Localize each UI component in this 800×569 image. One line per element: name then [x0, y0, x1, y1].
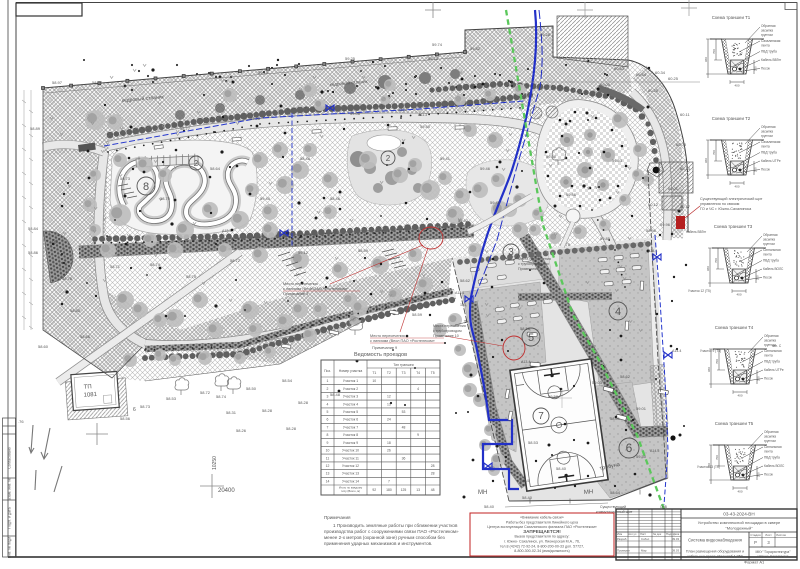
svg-text:60.64: 60.64: [636, 72, 647, 77]
svg-text:Кабель ВОЛС: Кабель ВОЛС: [763, 267, 784, 271]
svg-text:48: 48: [402, 425, 406, 429]
svg-text:Участок 10: Участок 10: [342, 449, 359, 453]
svg-text:1 Производить земляные рабо: 1 Производить земляные работы при сближе…: [333, 523, 458, 528]
svg-text:59.28: 59.28: [540, 32, 551, 37]
svg-text:№ док: № док: [653, 532, 662, 536]
svg-text:А11.2: А11.2: [398, 108, 407, 112]
svg-text:59.50: 59.50: [420, 124, 431, 129]
svg-text:58.53: 58.53: [166, 396, 177, 401]
svg-text:58.59: 58.59: [412, 312, 423, 317]
svg-text:А13.4: А13.4: [521, 360, 530, 364]
svg-text:250: 250: [756, 275, 760, 280]
svg-text:Разраб.: Разраб.: [617, 537, 627, 541]
svg-text:Инв. № подл.: Инв. № подл.: [8, 536, 12, 558]
svg-text:Место пересечения: Место пересечения: [370, 334, 405, 338]
svg-text:г.Южно-Сахалинска: г.Южно-Сахалинска: [757, 555, 788, 559]
svg-text:250: 250: [757, 376, 761, 381]
svg-text:1: 1: [327, 379, 329, 383]
svg-text:59.60: 59.60: [546, 154, 557, 159]
svg-text:лента: лента: [764, 354, 773, 358]
svg-text:Песок: Песок: [761, 168, 770, 172]
svg-text:Песок: Песок: [763, 276, 772, 280]
svg-text:лента: лента: [761, 44, 770, 48]
svg-text:1У3: 1У3: [460, 303, 466, 307]
svg-text:Участок 9 (Т3): Участок 9 (Т3): [700, 349, 721, 353]
svg-text:Примечание 10: Примечание 10: [518, 267, 544, 271]
svg-text:58.56: 58.56: [120, 416, 131, 421]
svg-text:58.48: 58.48: [300, 156, 311, 161]
svg-text:58.77: 58.77: [180, 126, 191, 131]
svg-text:.76: .76: [18, 419, 24, 424]
svg-text:58.40: 58.40: [484, 504, 495, 509]
svg-text:59.85: 59.85: [600, 236, 611, 241]
svg-text:59.06: 59.06: [250, 116, 261, 121]
svg-text:60.17: 60.17: [680, 204, 691, 209]
svg-text:13: 13: [387, 402, 391, 406]
svg-text:58.53: 58.53: [528, 440, 539, 445]
svg-text:А14.1: А14.1: [648, 249, 657, 253]
svg-text:58.28: 58.28: [298, 400, 309, 405]
svg-text:Участок 5: Участок 5: [343, 410, 358, 414]
svg-text:засыпка: засыпка: [764, 435, 776, 439]
svg-text:58.28: 58.28: [286, 426, 297, 431]
svg-text:59.50: 59.50: [398, 236, 409, 241]
svg-text:4: 4: [417, 387, 419, 391]
svg-text:ПВД труба: ПВД труба: [761, 50, 777, 54]
svg-text:24: 24: [387, 418, 391, 422]
svg-text:58.64: 58.64: [210, 166, 221, 171]
svg-text:8-800-300-02-34 (имя/должность: 8-800-300-02-34 (имя/должность): [514, 549, 569, 553]
svg-text:60.11: 60.11: [680, 112, 690, 117]
svg-text:14: 14: [326, 479, 330, 483]
svg-text:Участок 12: Участок 12: [342, 464, 359, 468]
svg-text:59.41: 59.41: [440, 156, 451, 161]
svg-text:А14.5: А14.5: [650, 449, 659, 453]
svg-text:Кабель UTPе: Кабель UTPе: [761, 159, 781, 163]
svg-text:11: 11: [326, 456, 330, 460]
svg-text:59.73: 59.73: [428, 56, 439, 61]
svg-text:Листов: Листов: [776, 533, 786, 537]
svg-text:Обратная: Обратная: [761, 125, 776, 129]
svg-text:60.14: 60.14: [680, 166, 691, 171]
svg-text:Примечание 9: Примечание 9: [372, 346, 397, 350]
svg-text:59.25: 59.25: [345, 56, 356, 61]
svg-text:Ведомость проездов: Ведомость проездов: [354, 352, 407, 358]
svg-text:10: 10: [326, 449, 330, 453]
svg-text:6: 6: [133, 407, 136, 413]
svg-text:700: 700: [712, 150, 716, 155]
svg-text:Участок 9: Участок 9: [343, 441, 358, 445]
svg-text:58.28: 58.28: [262, 408, 273, 413]
svg-text:59.40: 59.40: [260, 196, 271, 201]
svg-text:03-43-2024-ВН: 03-43-2024-ВН: [723, 512, 754, 517]
svg-text:грунтом: грунтом: [761, 33, 773, 37]
svg-text:Согласовано: Согласовано: [8, 447, 12, 469]
svg-text:400: 400: [737, 394, 742, 398]
svg-text:59.12: 59.12: [298, 250, 309, 255]
svg-text:Песок: Песок: [764, 473, 773, 477]
svg-text:Участок 8: Участок 8: [343, 433, 358, 437]
svg-text:58.72: 58.72: [230, 258, 241, 263]
svg-text:Участок 4: Участок 4: [343, 402, 358, 406]
svg-text:Существующий электрический щит: Существующий электрический щит: [700, 197, 763, 201]
svg-text:250: 250: [754, 66, 758, 71]
svg-text:менее 2-х метров (охранной зон: менее 2-х метров (охранной зоне) ручным …: [324, 534, 445, 540]
svg-text:Система видеонаблюдения: Система видеонаблюдения: [688, 538, 742, 543]
svg-text:09.03: 09.03: [672, 549, 679, 553]
svg-text:7: 7: [327, 425, 329, 429]
svg-text:58.76: 58.76: [62, 276, 73, 281]
svg-text:7: 7: [388, 479, 390, 483]
svg-text:засыпка: засыпка: [764, 339, 776, 343]
svg-text:8: 8: [327, 433, 329, 437]
svg-text:МКУ "Горархитектура": МКУ "Горархитектура": [756, 550, 792, 554]
svg-text:60.25: 60.25: [668, 76, 679, 81]
svg-text:Участок 1: Участок 1: [343, 379, 358, 383]
svg-text:Поз.: Поз.: [324, 369, 331, 373]
svg-text:Место пересечения: Место пересечения: [283, 282, 318, 286]
svg-text:960: 960: [706, 266, 710, 271]
svg-text:с трубопроводом: с трубопроводом: [433, 329, 462, 333]
svg-text:6: 6: [327, 418, 329, 422]
svg-text:А11.1: А11.1: [374, 104, 383, 108]
svg-text:58.71: 58.71: [110, 264, 121, 269]
svg-text:59.74: 59.74: [432, 42, 443, 47]
svg-text:58.73: 58.73: [120, 176, 131, 181]
svg-text:9: 9: [327, 441, 329, 445]
svg-text:59.82: 59.82: [470, 46, 481, 51]
svg-text:4: 4: [615, 306, 621, 318]
svg-text:лента: лента: [761, 145, 770, 149]
svg-text:28: 28: [431, 472, 435, 476]
svg-text:Кабель ВВГнг: Кабель ВВГнг: [686, 230, 707, 234]
svg-text:250: 250: [757, 472, 761, 477]
svg-text:грунтом: грунтом: [761, 134, 773, 138]
svg-text:400: 400: [737, 490, 742, 494]
svg-text:12: 12: [326, 464, 330, 468]
svg-text:10: 10: [372, 379, 376, 383]
svg-text:10250: 10250: [212, 456, 218, 470]
svg-text:60.01: 60.01: [668, 186, 679, 191]
svg-text:Т1: Т1: [372, 371, 376, 375]
svg-text:Подп. и дата: Подп. и дата: [8, 507, 12, 528]
svg-text:грунтом: грунтом: [764, 439, 776, 443]
svg-text:План размещения оборудования и: План размещения оборудования и: [686, 550, 744, 554]
svg-text:7: 7: [538, 411, 544, 422]
svg-text:Участок 11: Участок 11: [342, 456, 359, 460]
svg-text:92: 92: [372, 488, 376, 492]
svg-text:58.01: 58.01: [610, 416, 621, 421]
svg-text:Мар: Мар: [641, 549, 647, 553]
svg-text:ПВД труба: ПВД труба: [763, 259, 779, 263]
svg-text:Примечание 10: Примечание 10: [433, 334, 459, 338]
svg-text:58.72: 58.72: [200, 390, 211, 395]
svg-text:58.97: 58.97: [92, 80, 103, 85]
svg-text:53: 53: [402, 410, 406, 414]
svg-text:Тип траншеи: Тип траншеи: [393, 363, 413, 367]
svg-text:Взам. инв. №: Взам. инв. №: [8, 478, 12, 500]
svg-text:58.75: 58.75: [160, 196, 171, 201]
svg-text:Проверил: Проверил: [617, 549, 630, 553]
svg-text:59.50: 59.50: [636, 454, 647, 459]
svg-text:А13.1: А13.1: [455, 291, 464, 295]
svg-text:58.60: 58.60: [38, 344, 49, 349]
svg-text:засыпка: засыпка: [761, 29, 773, 33]
svg-text:лента: лента: [763, 253, 772, 257]
svg-text:59.63: 59.63: [612, 158, 623, 163]
svg-text:09.03: 09.03: [672, 537, 679, 541]
svg-text:13: 13: [416, 488, 420, 492]
svg-text:ПВД труба: ПВД труба: [761, 151, 777, 155]
svg-text:36: 36: [402, 456, 406, 460]
svg-text:59.03: 59.03: [592, 380, 603, 385]
svg-text:Участок 13 (Т5): Участок 13 (Т5): [697, 465, 720, 469]
svg-text:400: 400: [736, 293, 741, 297]
svg-text:Устройство комплексной площадк: Устройство комплексной площадки в сквере: [698, 520, 781, 525]
svg-text:20400: 20400: [218, 488, 235, 494]
svg-text:Примечание 3: Примечание 3: [283, 292, 308, 296]
svg-text:48: 48: [431, 488, 435, 492]
svg-text:58.31: 58.31: [226, 410, 237, 415]
svg-text:Изм: Изм: [617, 532, 622, 536]
svg-text:Кабель UTPе: Кабель UTPе: [764, 368, 784, 372]
svg-text:с линиями (Веол ПАО «Ростелеко: с линиями (Веол ПАО «Ростелеком»: [283, 287, 348, 291]
svg-text:58.26: 58.26: [236, 428, 247, 433]
svg-text:Обратная: Обратная: [763, 233, 778, 237]
svg-text:Кабель ВВГнг: Кабель ВВГнг: [761, 58, 782, 62]
svg-text:58.48: 58.48: [330, 392, 341, 397]
svg-text:960: 960: [704, 158, 708, 163]
svg-text:4: 4: [327, 402, 329, 406]
svg-text:700: 700: [714, 258, 718, 263]
svg-text:Сигнальная: Сигнальная: [764, 349, 782, 353]
svg-text:Лист: Лист: [765, 533, 772, 537]
svg-text:58.40: 58.40: [522, 495, 533, 500]
svg-text:125: 125: [401, 488, 407, 492]
svg-text:Сахалинская: Сахалинская: [761, 39, 781, 43]
svg-text:Схема траншеи Т2: Схема траншеи Т2: [712, 116, 751, 121]
svg-text:управления по связям: управления по связям: [700, 202, 740, 206]
svg-text:400: 400: [734, 84, 739, 88]
svg-text:Номер участка: Номер участка: [339, 369, 363, 373]
svg-text:ПВД труба: ПВД труба: [764, 456, 780, 460]
svg-text:Кол.уч: Кол.уч: [628, 532, 637, 536]
svg-text:"Молодежный": "Молодежный": [725, 526, 753, 531]
svg-text:Участок 14: Участок 14: [342, 479, 359, 483]
svg-text:применения ударных механизмов: применения ударных механизмов и инструме…: [324, 541, 432, 546]
svg-text:58.64: 58.64: [610, 490, 621, 495]
svg-text:А11.3: А11.3: [418, 113, 427, 117]
svg-text:ТП: ТП: [84, 384, 92, 391]
svg-text:58.97: 58.97: [52, 80, 63, 85]
svg-text:Т5: Т5: [431, 371, 435, 375]
svg-text:59.56: 59.56: [566, 192, 577, 197]
svg-text:60.34: 60.34: [655, 70, 666, 75]
svg-text:60.25: 60.25: [648, 88, 659, 93]
svg-text:Места пересечения: Места пересечения: [518, 257, 551, 261]
svg-text:ЗАПРЕЩАЕТСЯ!: ЗАПРЕЩАЕТСЯ!: [523, 529, 561, 534]
svg-text:Сахалинская: Сахалинская: [761, 140, 781, 144]
svg-text:2: 2: [194, 159, 199, 168]
svg-text:МН: МН: [478, 490, 487, 496]
svg-text:58.75: 58.75: [186, 274, 197, 279]
svg-text:грунтом: грунтом: [763, 242, 775, 246]
svg-text:Т2: Т2: [387, 371, 391, 375]
svg-text:Участок 12 (Т5): Участок 12 (Т5): [688, 289, 711, 293]
svg-text:9: 9: [417, 433, 419, 437]
svg-text:58.50: 58.50: [246, 386, 257, 391]
svg-text:засыпка: засыпка: [763, 238, 775, 242]
svg-text:59.62: 59.62: [458, 218, 469, 223]
svg-text:Песок: Песок: [761, 67, 770, 71]
svg-text:58.66: 58.66: [80, 334, 91, 339]
svg-text:8: 8: [143, 181, 149, 193]
svg-text:6: 6: [626, 441, 633, 455]
svg-text:59.10: 59.10: [258, 70, 269, 75]
svg-text:58.73: 58.73: [140, 404, 151, 409]
svg-text:засыпка: засыпка: [761, 130, 773, 134]
svg-text:58.62: 58.62: [460, 278, 471, 283]
svg-text:2: 2: [386, 154, 391, 163]
svg-text:59.96: 59.96: [660, 222, 671, 227]
svg-text:12: 12: [387, 395, 391, 399]
svg-text:59.48: 59.48: [490, 200, 501, 205]
svg-text:700: 700: [715, 359, 719, 364]
svg-text:26: 26: [387, 449, 391, 453]
svg-text:ПВД труба: ПВД труба: [764, 360, 780, 364]
svg-text:Места пересечения: Места пересечения: [433, 324, 466, 328]
svg-text:Работы без представителя Линей: Работы без представителя Линейного цеха: [506, 520, 578, 524]
svg-text:18: 18: [387, 441, 391, 445]
svg-text:700: 700: [712, 49, 716, 54]
svg-text:5: 5: [327, 410, 329, 414]
svg-text:кабельных трасс. Масштаб 1:250: кабельных трасс. Масштаб 1:250: [687, 555, 742, 559]
svg-text:59.01: 59.01: [636, 406, 647, 411]
svg-text:А12.2: А12.2: [222, 229, 231, 233]
svg-text:3: 3: [508, 247, 514, 258]
svg-text:«Внимание кабель связи»: «Внимание кабель связи»: [520, 516, 564, 520]
svg-text:Лист: Лист: [640, 532, 647, 536]
svg-text:5: 5: [528, 332, 534, 344]
svg-text:960: 960: [707, 367, 711, 372]
svg-text:А13.5: А13.5: [520, 479, 529, 483]
svg-text:700: 700: [715, 455, 719, 460]
svg-text:Участок 3: Участок 3: [343, 395, 358, 399]
svg-text:58.74: 58.74: [216, 394, 227, 399]
svg-text:58.59: 58.59: [358, 248, 369, 253]
svg-text:58.46: 58.46: [330, 196, 341, 201]
svg-text:Участок 2: Участок 2: [343, 387, 358, 391]
svg-text:Вызов представителя по адресу:: Вызов представителя по адресу:: [515, 535, 570, 539]
svg-text:960: 960: [704, 57, 708, 62]
svg-text:58.40: 58.40: [556, 466, 567, 471]
svg-text:ОНВ: ОНВ: [660, 505, 667, 509]
svg-text:3: 3: [327, 395, 329, 399]
svg-text:Формат А1: Формат А1: [744, 560, 765, 565]
svg-text:58.62: 58.62: [620, 374, 631, 379]
svg-text:58.80: 58.80: [70, 308, 81, 313]
svg-text:250: 250: [754, 167, 758, 172]
svg-text:Схема траншеи Т5: Схема траншеи Т5: [715, 421, 754, 426]
svg-text:60.63: 60.63: [614, 66, 625, 71]
svg-text:Участок 7: Участок 7: [343, 425, 358, 429]
svg-text:60.00: 60.00: [600, 82, 611, 87]
svg-text:58.89: 58.89: [30, 126, 41, 131]
svg-text:2: 2: [327, 387, 329, 391]
svg-text:Сигнальная: Сигнальная: [764, 445, 782, 449]
svg-text:59.08: 59.08: [350, 111, 361, 116]
svg-text:Обратная: Обратная: [764, 430, 779, 434]
svg-text:г. Южно- Сахалинск, ул. Пионер: г. Южно- Сахалинск, ул. Пионерская М.А.,…: [504, 540, 580, 544]
svg-text:Р: Р: [754, 540, 757, 545]
svg-text:28: 28: [431, 464, 435, 468]
svg-text:Т4: Т4: [416, 371, 420, 375]
svg-text:60.12: 60.12: [648, 202, 659, 207]
svg-text:Примечания: Примечания: [324, 515, 351, 520]
svg-text:59.46: 59.46: [480, 166, 491, 171]
svg-text:Участок 13: Участок 13: [342, 472, 359, 476]
svg-text:13: 13: [326, 472, 330, 476]
svg-text:60.03: 60.03: [676, 142, 687, 147]
svg-text:Собол: Собол: [641, 537, 650, 541]
svg-text:лента: лента: [764, 450, 773, 454]
svg-text:58.96: 58.96: [646, 228, 657, 233]
svg-text:производства работ с сооружени: производства работ с сооружениями связи …: [324, 529, 459, 534]
svg-text:Участок 6: Участок 6: [343, 418, 358, 422]
svg-text:58.54: 58.54: [282, 378, 293, 383]
svg-text:1081: 1081: [83, 392, 97, 399]
svg-text:58.74: 58.74: [150, 262, 161, 267]
svg-text:400: 400: [734, 185, 739, 189]
svg-text:59.58: 59.58: [438, 298, 449, 303]
svg-text:Т3: Т3: [402, 371, 406, 375]
svg-text:ГО и ЧС г. Южно-Сахалинска: ГО и ЧС г. Южно-Сахалинска: [700, 207, 752, 211]
svg-text:А14.4: А14.4: [672, 349, 681, 353]
svg-text:Обратная: Обратная: [764, 334, 779, 338]
svg-text:Стадия: Стадия: [750, 533, 761, 537]
svg-text:МН: МН: [584, 489, 594, 496]
svg-text:Дата: Дата: [673, 532, 680, 536]
svg-text:тел.8 (4242) 72-92-24, 8-800-2: тел.8 (4242) 72-92-24, 8-800-200-00-33 д…: [500, 544, 584, 548]
svg-text:Схема траншеи Т4: Схема траншеи Т4: [715, 325, 754, 330]
svg-text:59.67: 59.67: [586, 344, 597, 349]
svg-text:Обратная: Обратная: [761, 24, 776, 28]
svg-text:Кабель ВОЛС: Кабель ВОЛС: [764, 464, 785, 468]
svg-text:Песок: Песок: [764, 377, 773, 381]
svg-text:58.58: 58.58: [520, 326, 531, 331]
svg-text:Сигнальная: Сигнальная: [763, 248, 781, 252]
svg-text:зал. С: зал. С: [772, 344, 782, 348]
svg-text:Схема траншеи Т3: Схема траншеи Т3: [714, 224, 753, 229]
svg-text:с трубопроводами: с трубопроводами: [518, 262, 549, 266]
svg-text:с линиями (Веол ПАО «Ростелеко: с линиями (Веол ПАО «Ростелеком»: [370, 339, 435, 343]
svg-text:180: 180: [386, 488, 392, 492]
svg-text:Схема траншеи Т1: Схема траншеи Т1: [712, 15, 751, 20]
svg-text:типу (Всего, м): типу (Всего, м): [341, 489, 360, 493]
